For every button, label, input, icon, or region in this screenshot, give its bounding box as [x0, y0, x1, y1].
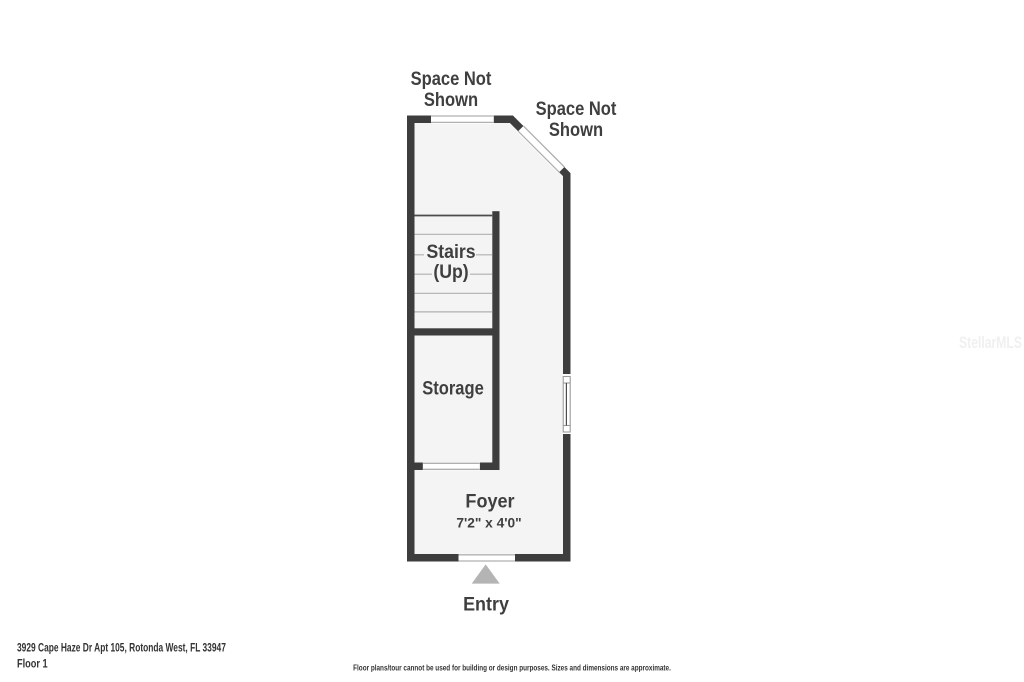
svg-text:StellarMLS: StellarMLS: [959, 334, 1022, 352]
